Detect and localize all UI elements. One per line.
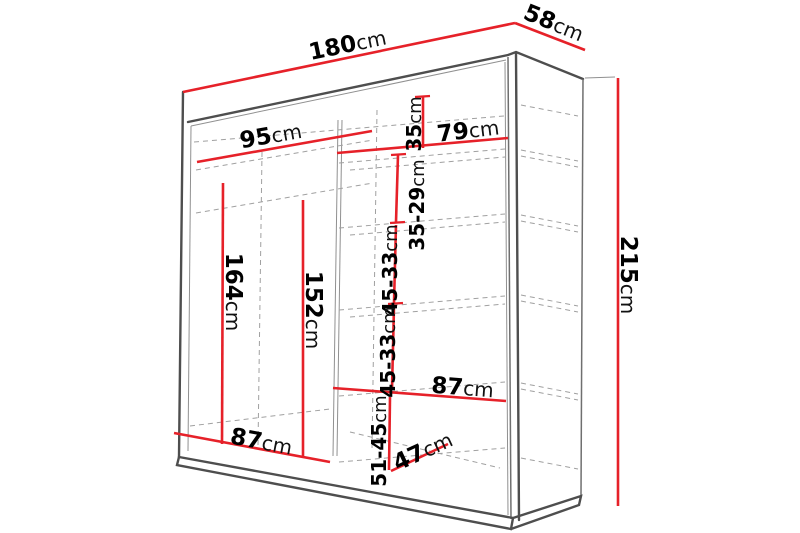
back-right-edge	[581, 79, 583, 496]
label-left-top-95: 95cm	[238, 118, 304, 154]
side-shelf-dashed-6	[521, 458, 578, 469]
plinth-side	[511, 496, 581, 529]
side-shelf-dashed-5b	[521, 389, 578, 400]
wardrobe-dimension-diagram: 180cm 58cm 215cm 95cm 79cm 87cm 87cm 47c…	[0, 0, 800, 533]
dim-35-29-line	[396, 155, 398, 222]
side-shelf-dashed-2a	[521, 150, 578, 161]
height-line-connector	[585, 77, 615, 78]
label-gap-45-33-b: 45-33cm	[376, 306, 400, 397]
plinth-front	[177, 457, 513, 529]
side-shelf-dashed-1	[521, 105, 578, 116]
interior-right-edge	[505, 62, 508, 515]
interior-top-edge	[191, 60, 506, 126]
front-right-edge-outer	[516, 53, 519, 520]
front-right-edge-inner	[508, 57, 511, 519]
side-shelf-dashed-2b	[521, 156, 578, 167]
label-gap-45-33-a: 45-33cm	[378, 224, 402, 315]
cornice-bottom-edge	[188, 52, 583, 122]
label-gap-35-29: 35-29cm	[405, 159, 429, 250]
label-left-bottom-87: 87cm	[228, 424, 294, 461]
side-shelf-dashed-4a	[521, 295, 578, 306]
left-edge	[179, 92, 183, 457]
label-height-215: 215cm	[615, 236, 641, 315]
bottom-front-edge	[179, 457, 513, 518]
diagram-canvas: 180cm 58cm 215cm 95cm 79cm 87cm 87cm 47c…	[0, 0, 800, 533]
left-bottom-back-dashed	[190, 409, 330, 426]
label-depth-58: 58cm	[520, 0, 588, 47]
left-back-corner-dashed	[258, 152, 262, 447]
label-right-top-79: 79cm	[436, 114, 501, 147]
side-shelf-dashed-3b	[521, 221, 578, 232]
right-shelf-dashed-3b	[350, 304, 505, 317]
label-gap-35: 35cm	[402, 96, 426, 151]
side-shelf-dashed-5a	[521, 383, 578, 394]
label-left-inner-152: 152cm	[300, 271, 326, 350]
tick-35-29-bottom	[390, 222, 405, 223]
label-left-height-164: 164cm	[220, 253, 246, 332]
right-shelf-dashed-3a	[339, 296, 505, 310]
label-right-bottom-87: 87cm	[430, 373, 494, 404]
label-bottom-depth-47: 47cm	[389, 427, 457, 477]
side-shelf-dashed-3a	[521, 215, 578, 226]
label-width-180: 180cm	[307, 24, 389, 65]
label-gap-51-45: 51-45cm	[367, 395, 391, 486]
side-shelf-dashed-4b	[521, 301, 578, 312]
tick-35-29-top	[391, 154, 406, 155]
interior-left-edge	[188, 126, 191, 451]
dimension-labels: 180cm 58cm 215cm 95cm 79cm 87cm 87cm 47c…	[220, 0, 641, 487]
